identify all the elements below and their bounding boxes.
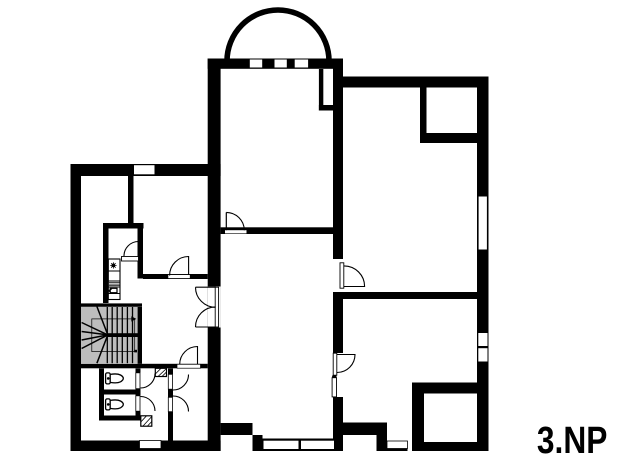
svg-text:3.NP: 3.NP bbox=[537, 420, 608, 462]
